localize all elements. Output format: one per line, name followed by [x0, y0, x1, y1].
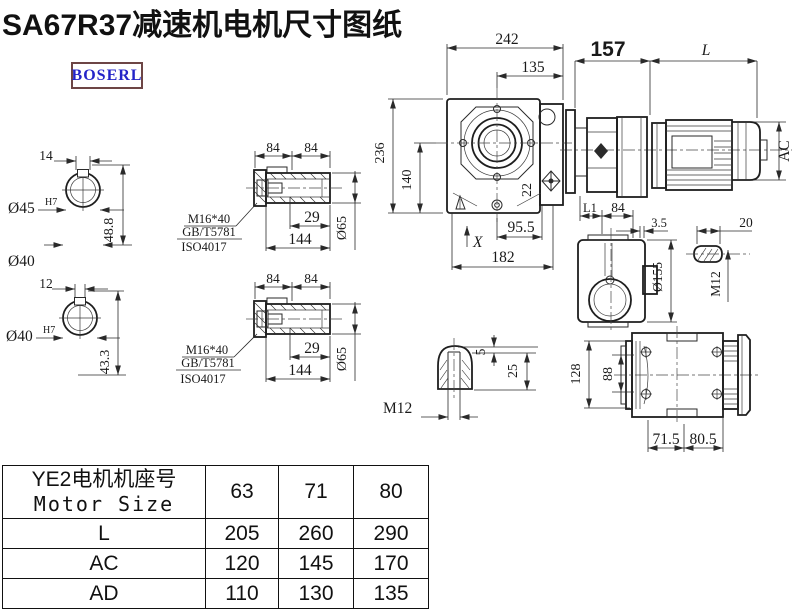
cell: 170 — [354, 549, 429, 579]
cell: 135 — [354, 579, 429, 609]
shaft-end-keyway-detail: 5 25 M12 — [383, 335, 538, 420]
cell: 145 — [279, 549, 354, 579]
motor-size-table: YE2电机机座号 Motor Size 63 71 80 L 205 260 2… — [2, 465, 429, 609]
dim-84: 84 — [611, 200, 625, 215]
size-col-71: 71 — [279, 466, 354, 519]
drawing-sheet: SA67R37减速机电机尺寸图纸 BOSERL 14 Ø45 H7 48.8 Ø… — [0, 0, 800, 609]
hollow-shaft-lower: 84 84 29 144 Ø65 M16*40 GB/T5781 ISO4017 — [176, 271, 361, 386]
row-label: AD — [3, 579, 206, 609]
dim-depth: 29 — [304, 209, 320, 226]
bolt-spec: M16*40 — [188, 212, 230, 226]
dim-tap-m12: M12 — [708, 271, 723, 297]
dim-gear-length: 157 — [590, 38, 625, 61]
dim-depth: 29 — [304, 340, 320, 357]
dim-seg1: 84 — [266, 140, 280, 155]
dim-bore-fit: H7 — [45, 197, 57, 208]
dim-key-width: 14 — [39, 148, 53, 163]
dim-hole: 22 — [520, 183, 535, 197]
gearbox-output-side-view: L1 84 3.5 20 Ø155 M12 — [578, 200, 753, 332]
dim-length: 144 — [288, 362, 312, 379]
dim-seg2: 84 — [304, 271, 318, 286]
dim-width: 242 — [495, 31, 518, 48]
bolt-std-gb: GB/T5781 — [182, 225, 235, 239]
dim-height: 43.3 — [98, 350, 113, 375]
cell: 130 — [279, 579, 354, 609]
table-row-L: L 205 260 290 — [3, 519, 429, 549]
dim-key-width: 12 — [39, 276, 53, 291]
solid-shaft-section-45: 14 Ø45 H7 48.8 Ø40 — [8, 148, 132, 270]
dim-bore: Ø45 — [8, 200, 35, 217]
dim-tap-m12: M12 — [383, 400, 412, 417]
cell: 120 — [206, 549, 279, 579]
section-mark: X — [472, 234, 483, 251]
dim-flange: 3.5 — [651, 216, 667, 230]
bolt-std-iso: ISO4017 — [181, 240, 226, 254]
dim-seg2: 84 — [304, 140, 318, 155]
dim-od: Ø40 — [8, 253, 35, 270]
dim-inner88: 88 — [601, 367, 616, 381]
dim-bore: Ø40 — [6, 328, 33, 345]
row-label: L — [3, 519, 206, 549]
dim-length: 144 — [288, 231, 312, 248]
dim-motor-dia: AC — [776, 140, 793, 162]
dim-l1: L1 — [583, 201, 597, 215]
table-header-motor-size: YE2电机机座号 Motor Size — [3, 466, 206, 519]
table-row-AC: AC 120 145 170 — [3, 549, 429, 579]
header-cn: YE2电机机座号 — [3, 468, 205, 492]
dim-dia155: Ø155 — [650, 262, 665, 292]
dimension-arrows — [54, 45, 782, 451]
bolt-std-iso: ISO4017 — [180, 372, 225, 386]
cell: 110 — [206, 579, 279, 609]
dim-dia: Ø65 — [335, 216, 350, 240]
dim-key-len: 20 — [739, 215, 753, 230]
dim-key-height: 25 — [506, 364, 521, 378]
dim-dia: Ø65 — [335, 347, 350, 371]
cell: 290 — [354, 519, 429, 549]
bolt-spec: M16*40 — [186, 343, 228, 357]
size-col-80: 80 — [354, 466, 429, 519]
dim-foot2: 80.5 — [689, 431, 716, 448]
dim-height: 236 — [373, 143, 388, 164]
dim-foot: 95.5 — [507, 219, 534, 236]
bolt-std-gb: GB/T5781 — [181, 356, 234, 370]
hollow-shaft-upper: 84 84 29 144 Ø65 M16*40 GB/T5781 ISO4017 — [177, 140, 361, 254]
gearmotor-bottom-view: 128 88 71.5 80.5 — [569, 326, 758, 452]
table-row-AD: AD 110 130 135 — [3, 579, 429, 609]
dim-center-to-face: 135 — [521, 59, 545, 76]
size-col-63: 63 — [206, 466, 279, 519]
dim-base: 182 — [491, 249, 514, 266]
cell: 205 — [206, 519, 279, 549]
gearbox-front-view: 242 135 236 140 22 95.5 182 X — [373, 31, 572, 270]
header-en: Motor Size — [3, 493, 205, 516]
dim-motor-length: L — [701, 42, 711, 59]
dim-height128: 128 — [569, 364, 584, 385]
cell: 260 — [279, 519, 354, 549]
dim-key-depth: 5 — [473, 348, 488, 355]
dim-seg1: 84 — [266, 271, 280, 286]
row-label: AC — [3, 549, 206, 579]
gearmotor-side-view: 157 L AC — [560, 38, 793, 221]
dim-height: 48.8 — [102, 218, 117, 243]
dim-center-height: 140 — [400, 170, 415, 191]
dim-bore-fit: H7 — [43, 325, 55, 336]
